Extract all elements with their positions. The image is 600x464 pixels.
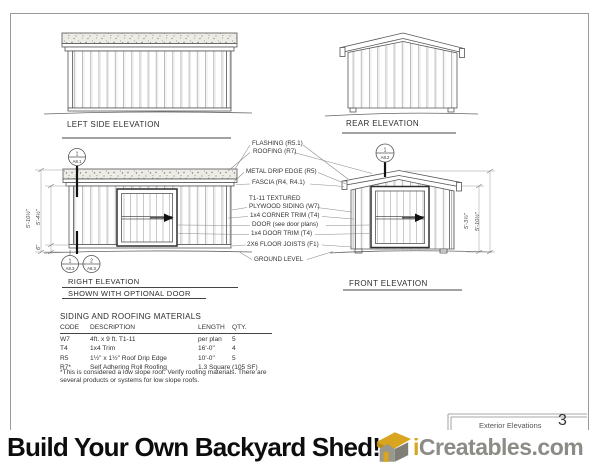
col-header-description: DESCRIPTION bbox=[90, 324, 198, 332]
brand-text: iCreatables.com bbox=[413, 434, 583, 461]
callout-drip-edge: METAL DRIP EDGE (R5) bbox=[246, 169, 317, 176]
callout-flashing: FLASHING (R5.1) bbox=[252, 141, 303, 148]
front-elevation-label: FRONT ELEVATION bbox=[349, 280, 428, 288]
plan-sheet: 1 A8.1 1 A8.3 2 A8.3 1 A8.2 LEFT SIDE EL… bbox=[0, 0, 600, 432]
roofing-note-line1: *This is considered a low slope roof. Ve… bbox=[60, 369, 267, 377]
cell-code: T4 bbox=[60, 345, 90, 353]
table-row: W7 4ft. x 9 ft. T1-11 per plan 5 bbox=[60, 336, 272, 344]
dim-front-eave-height: 5'-3¾" bbox=[465, 213, 472, 229]
dim-right-wall-height: 5'-4½" bbox=[37, 209, 44, 225]
callout-t111: T1-11 TEXTURED bbox=[249, 196, 301, 203]
callout-door-trim: 1x4 DOOR TRIM (T4) bbox=[251, 231, 312, 238]
cell-length: 16'-0" bbox=[198, 345, 232, 353]
banner-headline: Build Your Own Backyard Shed! bbox=[7, 432, 380, 463]
roofing-note: *This is considered a low slope roof. Ve… bbox=[60, 369, 267, 385]
brand-suffix: Creatables.com bbox=[419, 434, 583, 460]
cell-description: 1½" x 1½" Roof Drip Edge bbox=[90, 355, 198, 363]
cell-qty: 5 bbox=[232, 336, 272, 344]
materials-table: SIDING AND ROOFING MATERIALS CODE DESCRI… bbox=[60, 312, 272, 372]
cell-code: W7 bbox=[60, 336, 90, 344]
promo-banner-link[interactable]: Build Your Own Backyard Shed! iCreatable… bbox=[0, 430, 600, 464]
callout-roofing: ROOFING (R7) bbox=[253, 149, 296, 156]
cell-code: R5 bbox=[60, 355, 90, 363]
cell-length: 10'-0" bbox=[198, 355, 232, 363]
cell-length: per plan bbox=[198, 336, 232, 344]
cell-qty: 4 bbox=[232, 345, 272, 353]
col-header-length: LENGTH bbox=[198, 324, 232, 332]
right-elevation-label: RIGHT ELEVATION bbox=[68, 278, 140, 286]
callout-corner-trim: 1x4 CORNER TRIM (T4) bbox=[250, 213, 320, 220]
col-header-code: CODE bbox=[60, 324, 90, 332]
dim-right-floor-depth: 6" bbox=[37, 245, 44, 250]
col-header-qty: QTY. bbox=[232, 324, 272, 332]
cell-description: 1x4 Trim bbox=[90, 345, 198, 353]
page: 1 A8.1 1 A8.3 2 A8.3 1 A8.2 LEFT SIDE EL… bbox=[0, 0, 600, 464]
cell-description: 4ft. x 9 ft. T1-11 bbox=[90, 336, 198, 344]
callout-floor-joists: 2X6 FLOOR JOISTS (F1) bbox=[247, 242, 319, 249]
dim-right-total-height: 5'-10½" bbox=[27, 209, 34, 228]
roofing-note-line2: several products or systems for low slop… bbox=[60, 377, 267, 385]
shed-logo-icon bbox=[374, 431, 412, 464]
callout-ground-level: GROUND LEVEL bbox=[254, 257, 303, 264]
cell-qty: 5 bbox=[232, 355, 272, 363]
materials-table-title: SIDING AND ROOFING MATERIALS bbox=[60, 312, 272, 321]
table-row: R5 1½" x 1½" Roof Drip Edge 10'-0" 5 bbox=[60, 355, 272, 363]
sheet-title: Exterior Elevations bbox=[479, 422, 542, 430]
right-elevation-sublabel: SHOWN WITH OPTIONAL DOOR bbox=[68, 290, 191, 298]
materials-header-row: CODE DESCRIPTION LENGTH QTY. bbox=[60, 324, 272, 334]
callout-fascia: FASCIA (R4, R4.1) bbox=[252, 180, 305, 187]
callout-siding: PLYWOOD SIDING (W7) bbox=[249, 204, 320, 211]
table-row: T4 1x4 Trim 16'-0" 4 bbox=[60, 345, 272, 353]
left-elevation-label: LEFT SIDE ELEVATION bbox=[67, 121, 160, 129]
dim-front-peak-height: 5'-10½" bbox=[476, 212, 483, 231]
rear-elevation-label: REAR ELEVATION bbox=[346, 120, 419, 128]
sheet-number: 3 bbox=[558, 413, 567, 430]
callout-door: DOOR (see door plans) bbox=[252, 222, 318, 229]
